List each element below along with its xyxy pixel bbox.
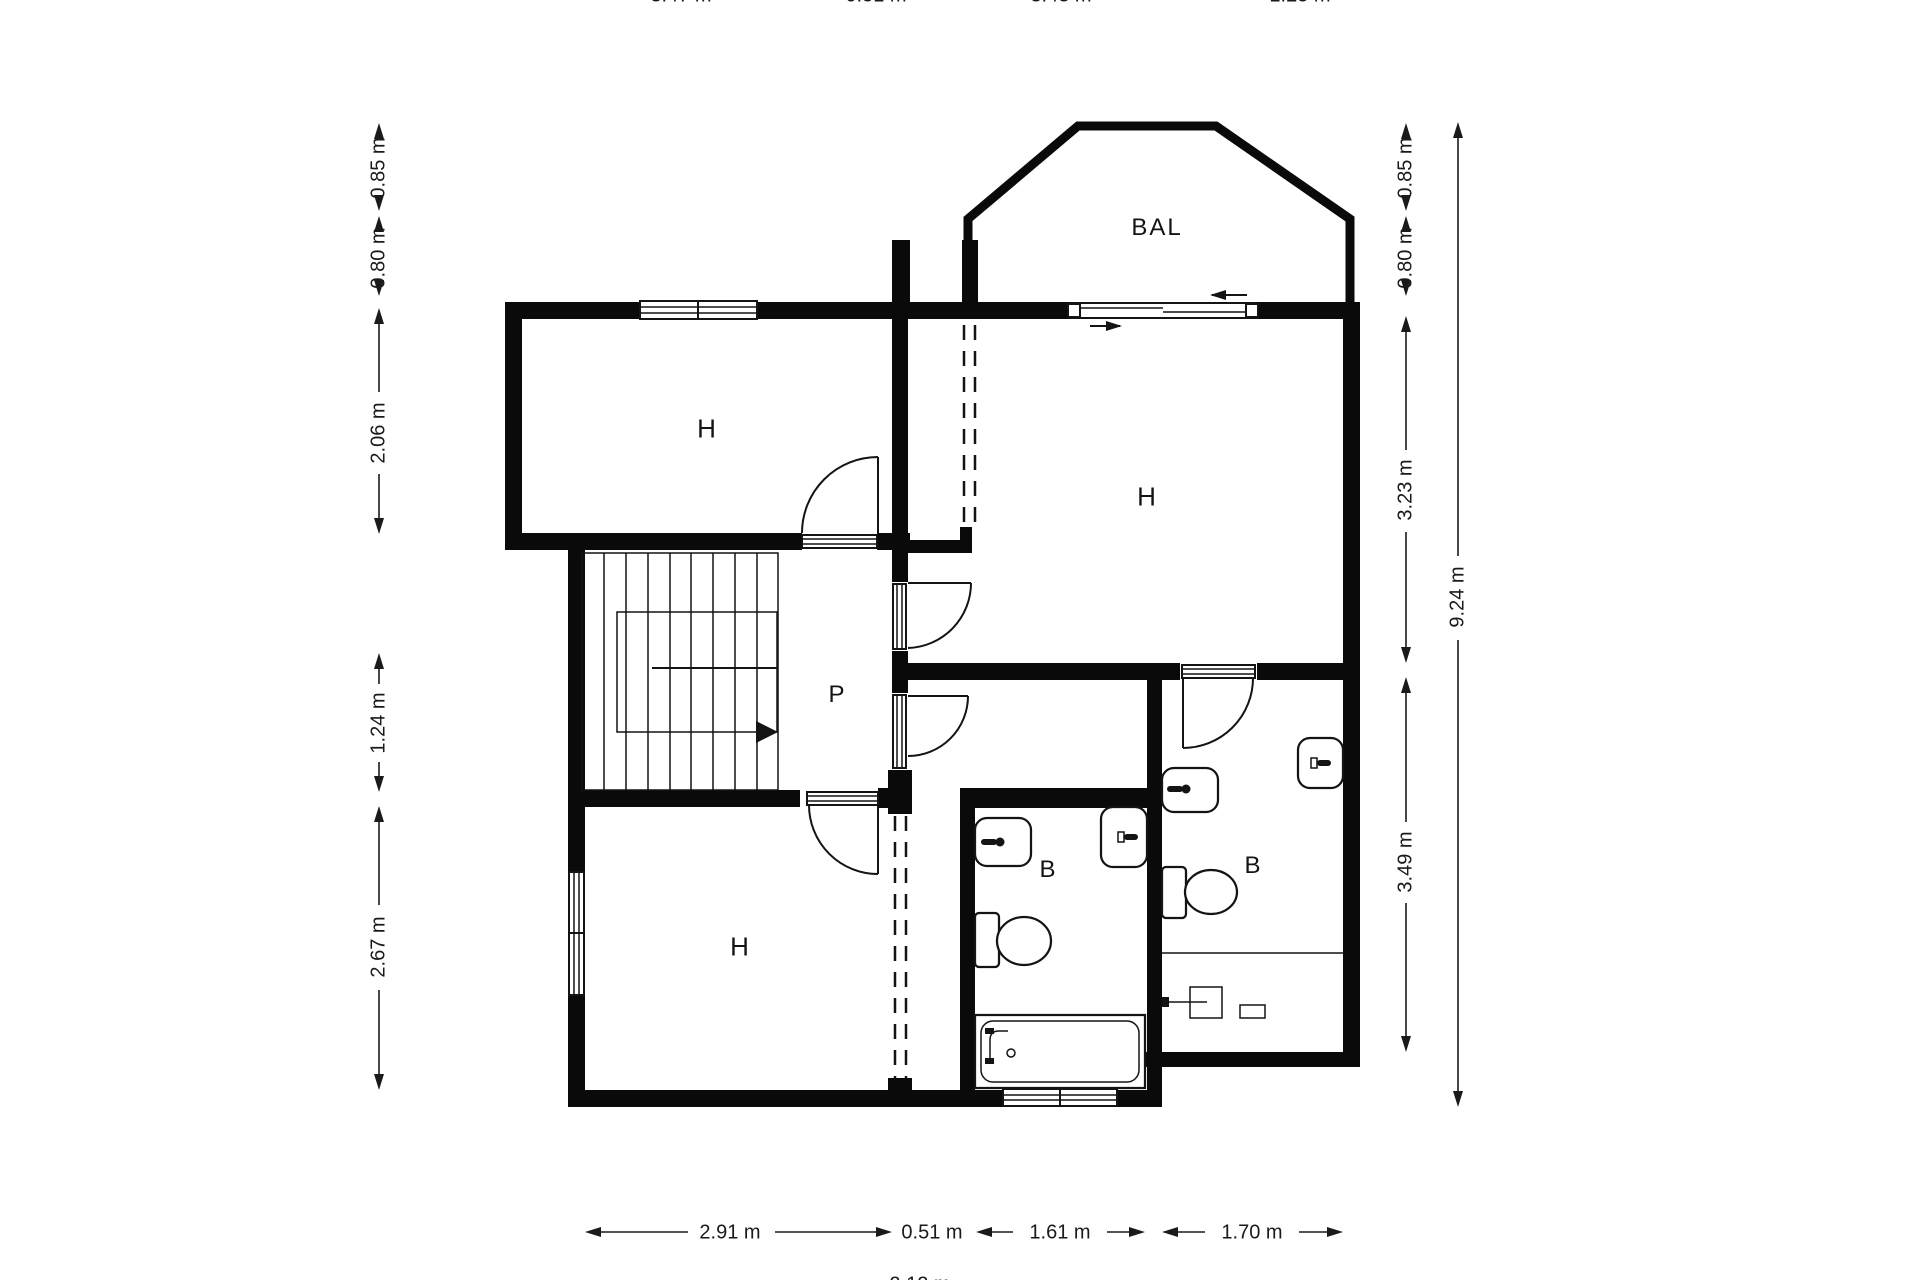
dashed-opening-lower: [895, 816, 906, 1078]
dashed-opening-upper: [964, 325, 975, 523]
door-top-left-room: [802, 457, 878, 548]
dimension-label-clipped: 3.47 m: [650, 0, 711, 8]
sliding-door: [1068, 290, 1258, 331]
dimension-label: 0.51 m: [901, 1222, 962, 1245]
toilet-right-bath: [1162, 867, 1237, 918]
dimension-label: 1.61 m: [1029, 1222, 1090, 1245]
door-right-bathroom: [1182, 665, 1255, 748]
room-label-h-top-left: H: [697, 414, 717, 445]
dimension-label: 2.06 m: [368, 402, 391, 463]
bathtub: [975, 1015, 1145, 1088]
dimension-label: 0.85 m: [368, 137, 391, 198]
sink-right-bath-left: [1162, 768, 1218, 812]
room-label-bath-middle: B: [1039, 856, 1056, 884]
dimension-label-clipped: 1.25 m: [1269, 0, 1330, 8]
door-top-right-room: [893, 583, 971, 649]
room-label-balcony: BAL: [1131, 214, 1182, 242]
floor-plan-drawing: [0, 0, 1920, 1280]
sink-middle-bath-right: [1101, 807, 1147, 867]
room-label-h-bottom: H: [730, 932, 750, 963]
dimension-label: 1.70 m: [1221, 1222, 1282, 1245]
dimension-label: 2.91 m: [699, 1222, 760, 1245]
dimension-label: 0.85 m: [1395, 137, 1418, 198]
door-vestibule: [893, 695, 968, 768]
window-left: [569, 872, 584, 995]
toilet-middle-bath: [975, 913, 1051, 967]
room-label-bath-right: B: [1244, 852, 1261, 880]
dimension-label: 1.24 m: [368, 692, 391, 753]
stair-direction-arrow: [756, 721, 778, 743]
window-top: [640, 301, 757, 319]
sink-right-bath-right: [1298, 738, 1343, 788]
dimension-label: 3.49 m: [1395, 831, 1418, 892]
dimension-label-clipped: 0.51 m: [845, 0, 906, 8]
floor-plan-page: H H H P B B BAL 0.85 m 0.80 m 2.06 m 1.2…: [0, 0, 1920, 1280]
dimension-label-clipped: 3.43 m: [1030, 0, 1091, 8]
dimension-label: 0.80 m: [1395, 227, 1418, 288]
room-label-hall: P: [828, 681, 845, 709]
room-label-h-top-right: H: [1137, 482, 1157, 513]
sink-middle-bath-top: [975, 818, 1031, 866]
dimension-label-total-height: 9.24 m: [1447, 566, 1470, 627]
laundry-zone: [1162, 953, 1343, 1018]
dimension-label-clipped: 2.12 m: [889, 1274, 950, 1280]
staircase: [582, 553, 778, 790]
dimension-label: 3.23 m: [1395, 459, 1418, 520]
dimension-label: 0.80 m: [368, 227, 391, 288]
window-bottom: [1003, 1089, 1117, 1106]
dimension-label: 2.67 m: [368, 916, 391, 977]
door-bottom-room: [807, 792, 878, 874]
